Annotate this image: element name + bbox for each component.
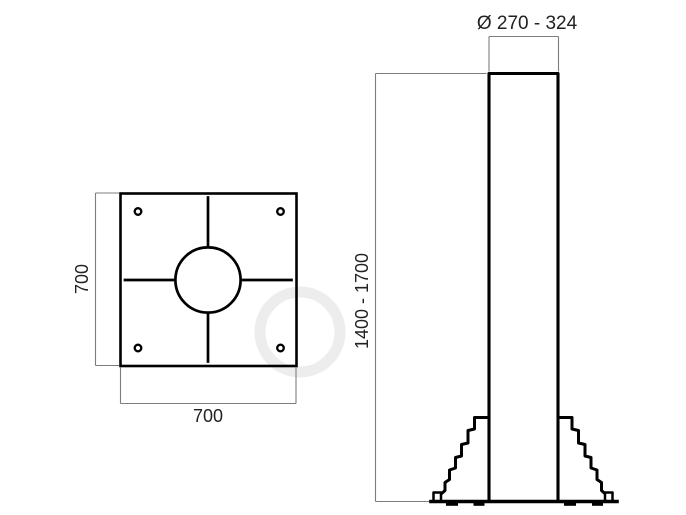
bolt-hole-bottom-left bbox=[135, 345, 142, 352]
plate-center-hole bbox=[175, 247, 240, 312]
base-foot-3 bbox=[564, 503, 576, 506]
watermark-circle bbox=[260, 292, 340, 372]
base-gusset-right bbox=[558, 418, 607, 502]
dim-label-plate-width: 700 bbox=[128, 405, 288, 427]
top-view-dimension-lines bbox=[96, 193, 297, 404]
drawing-svg bbox=[0, 0, 686, 515]
bolt-hole-top-left bbox=[135, 208, 142, 215]
pole-side-view bbox=[431, 74, 617, 506]
pole-shaft-outline bbox=[489, 74, 558, 502]
dim-label-plate-height: 700 bbox=[71, 199, 93, 359]
bolt-hole-top-right bbox=[277, 208, 284, 215]
base-foot-2 bbox=[474, 503, 485, 506]
bolt-hole-bottom-right bbox=[277, 345, 284, 352]
base-gusset-left bbox=[440, 418, 489, 502]
base-foot-1 bbox=[446, 503, 458, 506]
base-foot-4 bbox=[592, 503, 603, 506]
dim-label-pole-height: 1400 - 1700 bbox=[351, 221, 373, 381]
base-plate-top-view bbox=[121, 194, 297, 367]
dim-label-pole-diameter: Ø 270 - 324 bbox=[447, 13, 607, 35]
technical-drawing-page: Ø 270 - 324 1400 - 1700 700 700 bbox=[0, 0, 686, 515]
